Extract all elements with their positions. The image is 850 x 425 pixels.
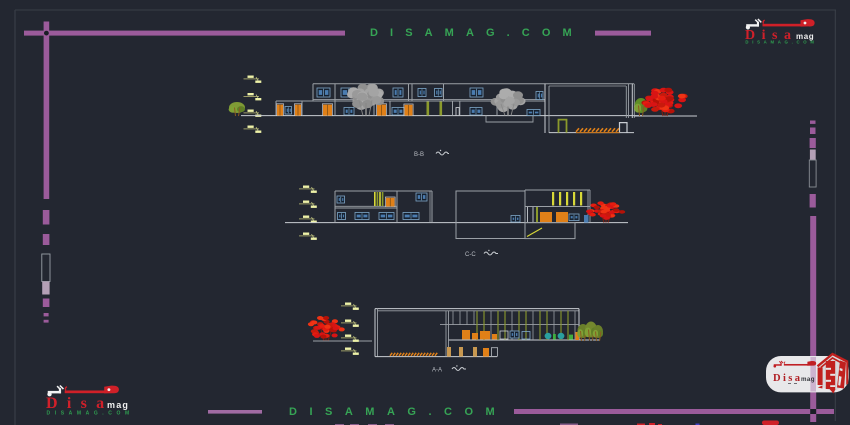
- svg-text:DISAMAG.COM: DISAMAG.COM: [289, 406, 507, 418]
- svg-text:DISAMAG.COM: DISAMAG.COM: [745, 39, 817, 44]
- svg-text:B-B: B-B: [414, 152, 424, 158]
- svg-text:Disa: Disa: [46, 395, 113, 412]
- svg-text:A-A: A-A: [432, 368, 442, 374]
- svg-text:mag: mag: [801, 376, 815, 383]
- svg-text:C-C: C-C: [465, 252, 476, 258]
- svg-text:DISAMAG.COM: DISAMAG.COM: [370, 27, 584, 39]
- svg-text:Disa: Disa: [773, 373, 802, 384]
- svg-text:DISAMAG.COM: DISAMAG.COM: [47, 411, 134, 417]
- svg-text:mag: mag: [107, 400, 129, 410]
